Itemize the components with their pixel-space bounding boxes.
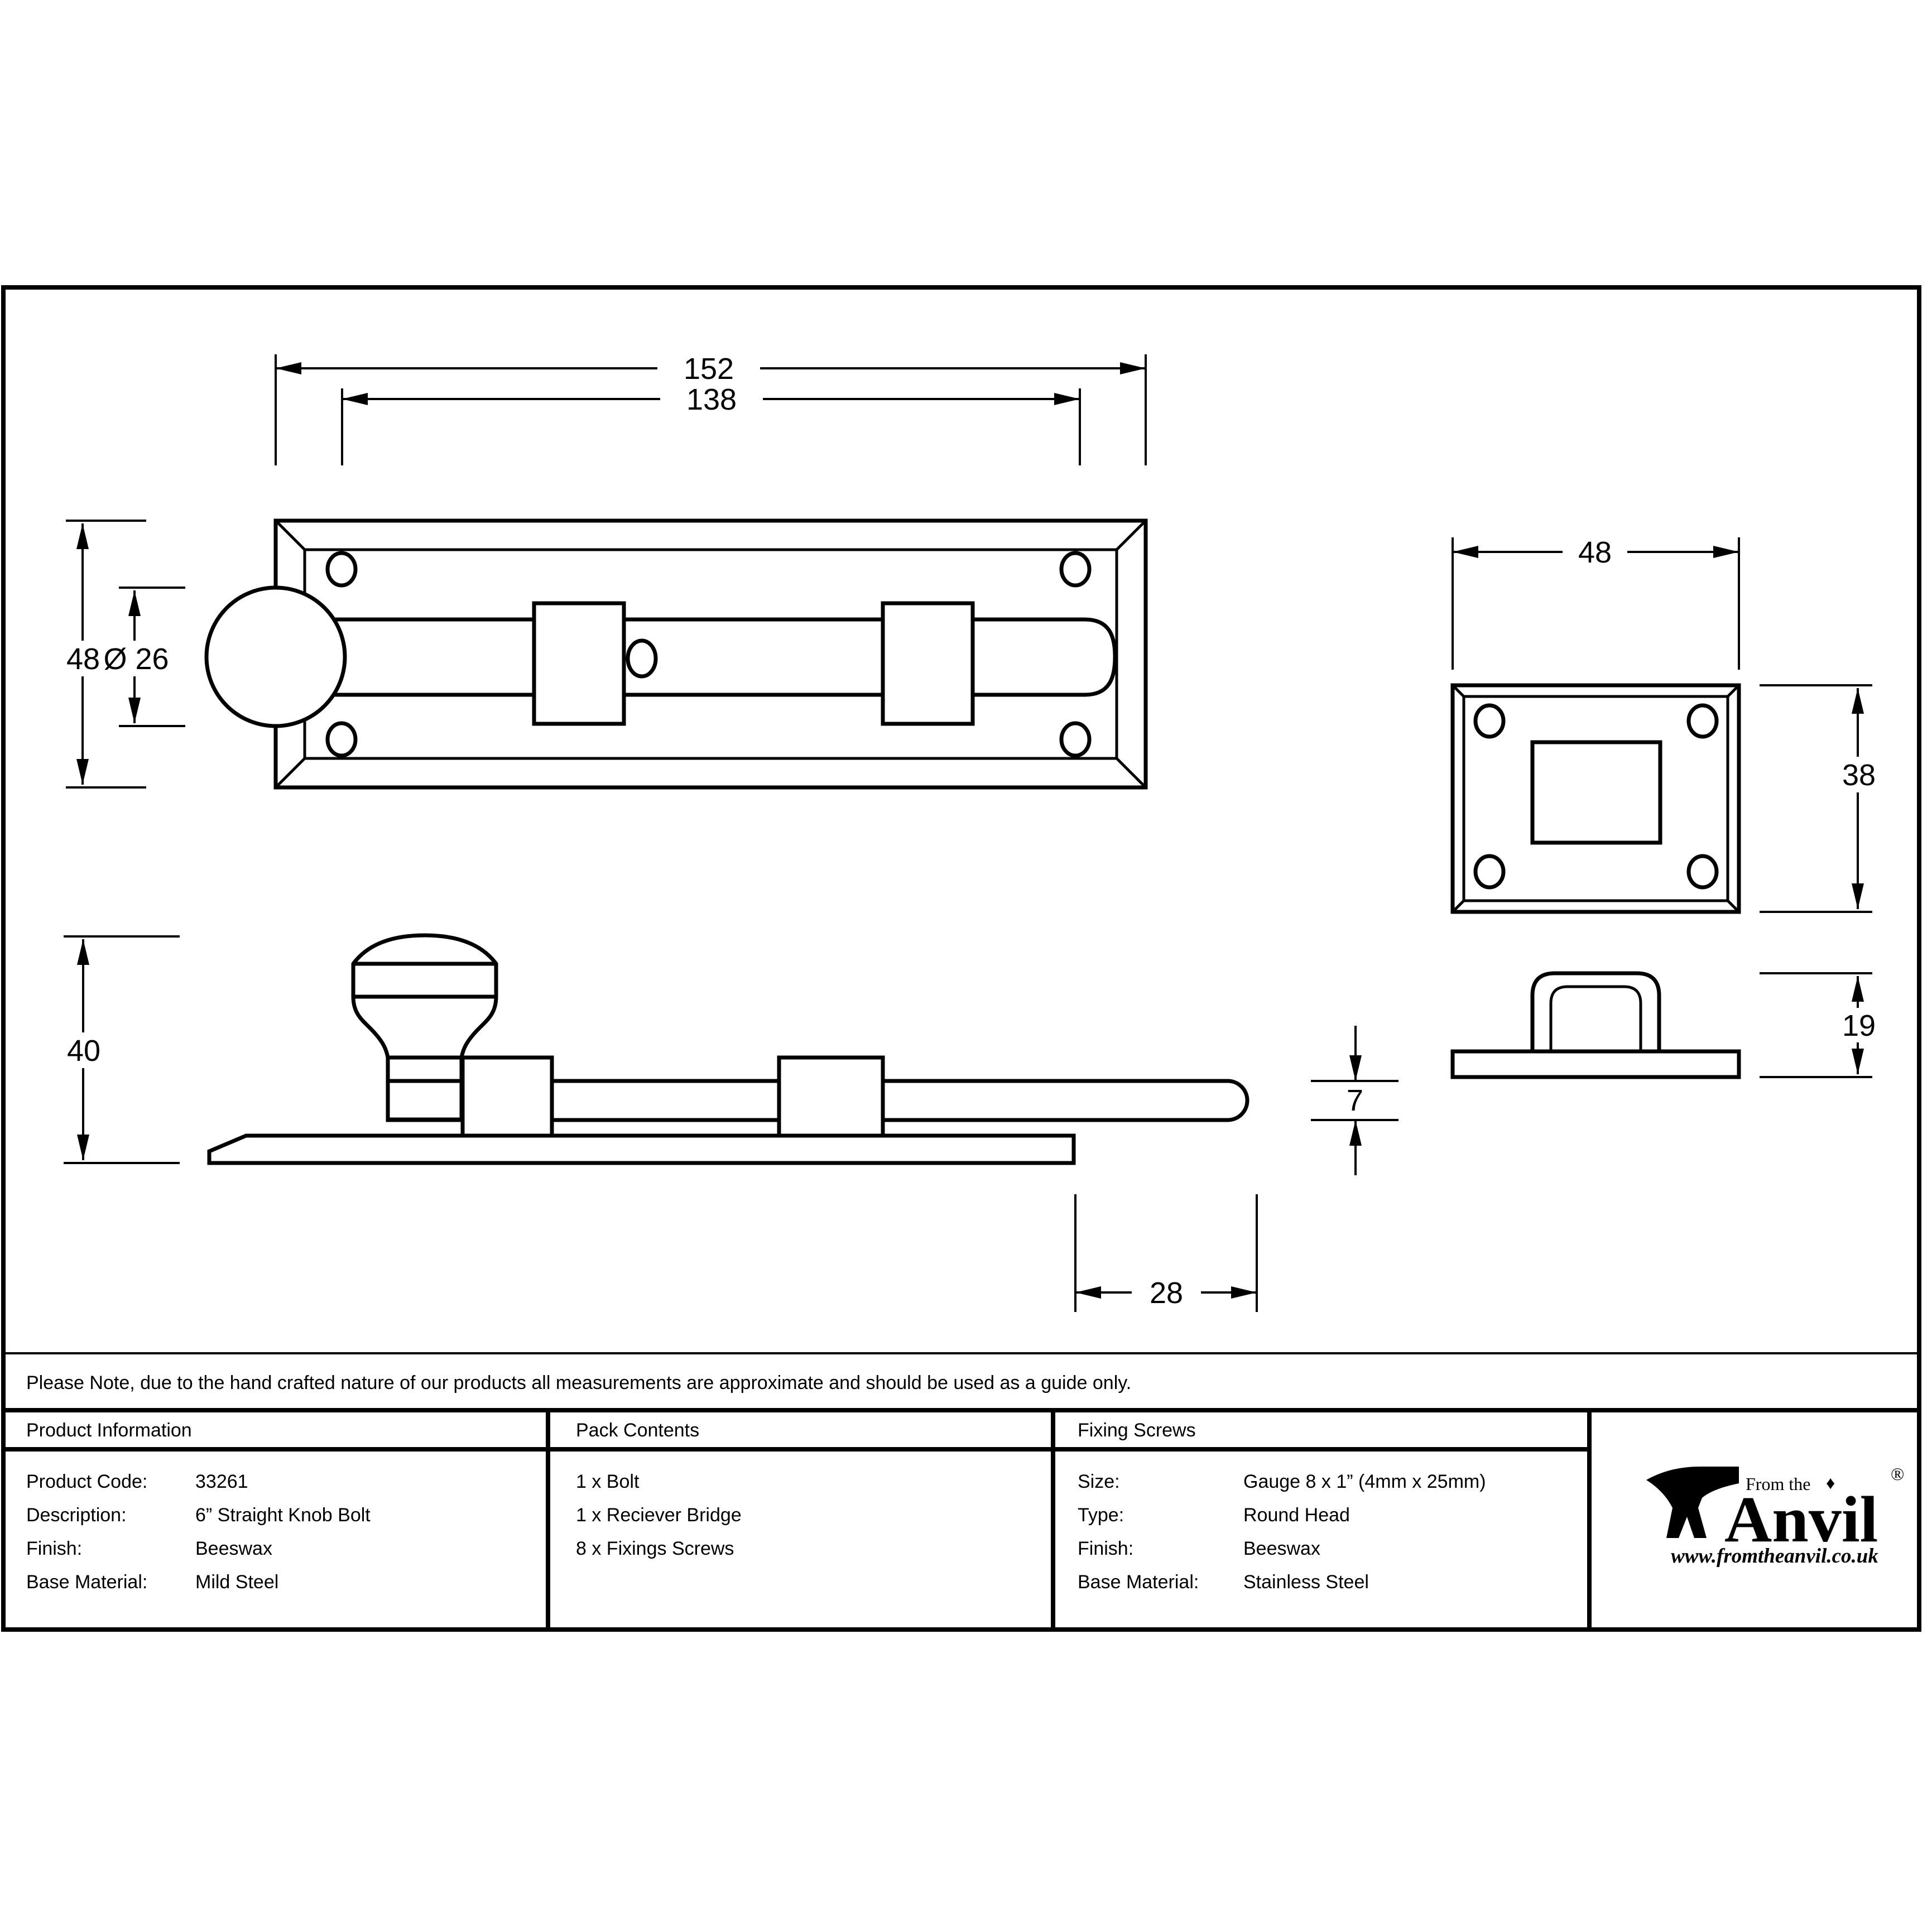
screw-hole: [1476, 705, 1503, 737]
rod-guide-side: [779, 1058, 883, 1136]
brand-logo: From the ♦ Anvil ® www.fromtheanvil.co.u…: [1646, 1464, 1904, 1568]
rod-guide-side: [463, 1058, 552, 1136]
dim-label-40: 40: [67, 1034, 100, 1068]
knob-front: [206, 588, 345, 726]
column-header-pack-contents: Pack Contents: [576, 1420, 699, 1441]
bolt-rod: [313, 619, 1115, 695]
dim-bridge-side-height: 19: [1760, 973, 1879, 1077]
knob-shank: [388, 1058, 462, 1119]
row-label: Finish:: [26, 1538, 82, 1559]
dim-bridge-width: 48: [1453, 535, 1739, 670]
row-label: Description:: [26, 1505, 127, 1526]
row-label: Product Code:: [26, 1471, 147, 1492]
dim-label-48: 48: [66, 642, 100, 676]
info-table: Please Note, due to the hand crafted nat…: [3, 1353, 1919, 1630]
receiver-bridge-side-view: [1453, 973, 1739, 1077]
dim-fixing-centres: 138: [342, 383, 1080, 465]
logo-website-url: www.fromtheanvil.co.uk: [1671, 1545, 1878, 1568]
bridge-loop-inner: [1551, 987, 1641, 1051]
row-label: Finish:: [1078, 1538, 1133, 1559]
screw-hole: [1476, 856, 1503, 887]
column-header-fixing-screws: Fixing Screws: [1078, 1420, 1196, 1441]
pack-item: 1 x Reciever Bridge: [576, 1505, 742, 1526]
bolt-side-view: [209, 935, 1247, 1163]
row-value: Beeswax: [195, 1538, 272, 1559]
rod-guide: [883, 603, 973, 724]
backplate-side: [209, 1136, 1074, 1163]
bridge-bevel-corners: [1453, 685, 1739, 912]
screw-hole: [328, 553, 355, 585]
dim-label-28: 28: [1150, 1276, 1183, 1310]
rod-guide: [534, 603, 624, 724]
bridge-base-side: [1453, 1051, 1739, 1077]
bridge-opening: [1532, 742, 1660, 843]
dim-label-152: 152: [684, 352, 734, 386]
row-value: Gauge 8 x 1” (4mm x 25mm): [1243, 1471, 1486, 1492]
dim-label-knob-diameter: Ø 26: [103, 642, 169, 676]
dim-label-138: 138: [686, 383, 737, 416]
screw-hole: [1061, 723, 1089, 756]
row-value: 33261: [195, 1471, 248, 1492]
bolt-top-view: [206, 521, 1146, 787]
row-label: Size:: [1078, 1471, 1120, 1492]
row-value: Beeswax: [1243, 1538, 1320, 1559]
pack-item: 1 x Bolt: [576, 1471, 640, 1492]
dim-rod-thickness: 7: [1311, 1026, 1398, 1175]
row-label: Base Material:: [26, 1571, 147, 1593]
product-drawing-sheet: 152 138 48 Ø 26 48: [0, 0, 1932, 1932]
registered-trademark-icon: ®: [1891, 1464, 1904, 1484]
row-label: Base Material:: [1078, 1571, 1199, 1593]
row-value: Mild Steel: [195, 1571, 278, 1593]
rod-pin-hole: [628, 641, 656, 676]
dim-bridge-height: 38: [1760, 685, 1880, 912]
sheet-border: [3, 287, 1919, 1630]
fixing-screws-cell: Size: Gauge 8 x 1” (4mm x 25mm) Type: Ro…: [1078, 1471, 1486, 1593]
dim-label-bridge-48: 48: [1578, 536, 1612, 569]
drawing-canvas: 152 138 48 Ø 26 48: [0, 0, 1932, 1932]
dim-side-height: 40: [61, 936, 180, 1163]
receiver-bridge-front-view: [1453, 685, 1739, 912]
bridge-plate-outline: [1453, 685, 1739, 912]
pack-contents-cell: 1 x Bolt 1 x Reciever Bridge 8 x Fixings…: [576, 1471, 742, 1559]
dim-label-7: 7: [1347, 1084, 1363, 1117]
measurement-note: Please Note, due to the hand crafted nat…: [26, 1372, 1131, 1393]
dim-knob-diameter: Ø 26: [103, 588, 185, 726]
screw-hole: [1689, 705, 1717, 737]
pack-item: 8 x Fixings Screws: [576, 1538, 734, 1559]
screw-hole: [1061, 553, 1089, 585]
dim-label-19: 19: [1842, 1009, 1876, 1042]
column-header-product-information: Product Information: [26, 1420, 192, 1441]
row-value: 6” Straight Knob Bolt: [195, 1505, 371, 1526]
screw-hole: [328, 723, 355, 756]
dim-label-38: 38: [1842, 758, 1876, 792]
screw-hole: [1689, 856, 1717, 887]
row-label: Type:: [1078, 1505, 1124, 1526]
row-value: Stainless Steel: [1243, 1571, 1369, 1593]
anvil-icon-legs: [1666, 1508, 1707, 1538]
dim-throw: 28: [1075, 1194, 1257, 1312]
product-information-cell: Product Code: 33261 Description: 6” Stra…: [26, 1471, 371, 1593]
row-value: Round Head: [1243, 1505, 1350, 1526]
